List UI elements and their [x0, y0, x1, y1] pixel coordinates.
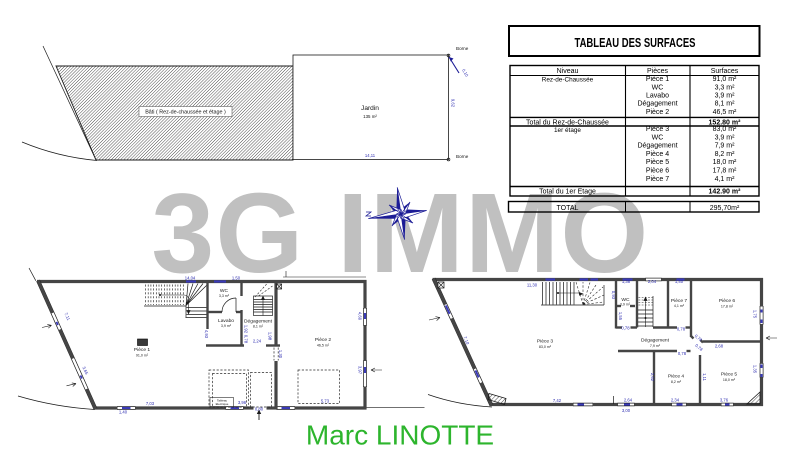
- svg-text:0,78: 0,78: [678, 351, 687, 356]
- svg-text:Marc LINOTTE: Marc LINOTTE: [306, 420, 494, 450]
- svg-text:Jardin: Jardin: [361, 105, 379, 112]
- svg-text:14,11: 14,11: [365, 153, 376, 158]
- svg-text:0,78: 0,78: [694, 343, 704, 353]
- svg-text:2,64: 2,64: [624, 398, 633, 403]
- svg-text:0,93: 0,93: [611, 291, 616, 300]
- svg-text:Total du Rez-de-Chaussée: Total du Rez-de-Chaussée: [526, 119, 609, 126]
- svg-text:1,92: 1,92: [244, 325, 249, 334]
- svg-text:0,78: 0,78: [621, 326, 630, 331]
- svg-text:Pièce 2: Pièce 2: [646, 109, 669, 116]
- svg-text:1,38: 1,38: [622, 279, 631, 284]
- svg-text:3,9 m²: 3,9 m²: [715, 134, 736, 141]
- svg-text:46,5 m²: 46,5 m²: [317, 344, 330, 348]
- svg-text:8,2 m²: 8,2 m²: [671, 380, 682, 384]
- svg-text:3,3 m²: 3,3 m²: [219, 294, 230, 298]
- svg-text:9,62: 9,62: [451, 99, 456, 108]
- svg-text:1,55: 1,55: [618, 312, 623, 321]
- svg-text:0,80: 0,80: [255, 406, 264, 411]
- svg-text:4,1 m²: 4,1 m²: [715, 176, 736, 183]
- svg-text:1,40: 1,40: [119, 410, 128, 415]
- svg-text:3,97: 3,97: [358, 366, 363, 375]
- svg-text:WC: WC: [652, 85, 664, 92]
- svg-text:Rez-de-Chaussée: Rez-de-Chaussée: [542, 77, 594, 84]
- svg-text:7,42: 7,42: [553, 398, 562, 403]
- svg-text:2,24: 2,24: [253, 338, 262, 343]
- svg-text:Pièce 3: Pièce 3: [537, 339, 554, 345]
- svg-text:TABLEAU DES SURFACES: TABLEAU DES SURFACES: [575, 35, 696, 50]
- svg-text:2,68: 2,68: [715, 344, 724, 349]
- svg-text:Lavabo: Lavabo: [646, 93, 669, 100]
- svg-text:3,96: 3,96: [238, 400, 247, 405]
- svg-text:3,9 m²: 3,9 m²: [620, 302, 631, 306]
- svg-text:14,04: 14,04: [185, 276, 196, 281]
- svg-text:83,0 m²: 83,0 m²: [539, 345, 552, 349]
- svg-text:3,76: 3,76: [720, 398, 729, 403]
- svg-text:91,0 m²: 91,0 m²: [136, 354, 149, 358]
- svg-text:46,5 m²: 46,5 m²: [713, 109, 737, 116]
- svg-text:4,93: 4,93: [204, 330, 209, 339]
- svg-text:TOTAL: TOTAL: [557, 205, 579, 212]
- svg-text:2,62: 2,62: [650, 373, 655, 382]
- svg-text:7,03: 7,03: [146, 401, 155, 406]
- svg-text:Total du 1er Etage: Total du 1er Etage: [539, 188, 596, 195]
- svg-text:8,2 m²: 8,2 m²: [715, 151, 736, 158]
- svg-text:1,30: 1,30: [278, 350, 283, 359]
- svg-text:2,04: 2,04: [648, 279, 657, 284]
- svg-text:Pièce 1: Pièce 1: [646, 76, 669, 83]
- svg-text:7,9 m²: 7,9 m²: [650, 344, 661, 348]
- svg-text:3,65: 3,65: [81, 366, 89, 376]
- svg-text:Surfaces: Surfaces: [711, 68, 739, 75]
- svg-text:11,30: 11,30: [527, 283, 538, 288]
- svg-text:Bâti ( Rez-de-chaussée et étag: Bâti ( Rez-de-chaussée et étage ): [145, 110, 226, 116]
- svg-text:Pièce 1: Pièce 1: [134, 347, 151, 353]
- svg-text:17,8 m²: 17,8 m²: [721, 305, 734, 309]
- svg-text:Pièces: Pièces: [647, 68, 669, 75]
- svg-text:Pièce 5: Pièce 5: [646, 159, 669, 166]
- svg-text:Borne: Borne: [456, 46, 469, 51]
- svg-text:Dégagement: Dégagement: [637, 100, 677, 107]
- svg-text:Pièce 6: Pièce 6: [646, 168, 669, 175]
- svg-text:0,78: 0,78: [677, 327, 686, 332]
- svg-text:295,70m²: 295,70m²: [710, 205, 740, 212]
- svg-text:3,9 m²: 3,9 m²: [715, 93, 736, 100]
- svg-text:Borne: Borne: [456, 154, 469, 159]
- svg-text:8,1 m²: 8,1 m²: [715, 100, 736, 107]
- svg-text:Dégagement: Dégagement: [641, 338, 670, 344]
- svg-text:Dégagement: Dégagement: [637, 143, 677, 150]
- svg-text:83,0 m²: 83,0 m²: [713, 126, 737, 133]
- svg-text:1er étage: 1er étage: [554, 127, 581, 134]
- svg-text:5,73: 5,73: [321, 398, 330, 403]
- svg-text:7,11: 7,11: [63, 312, 71, 322]
- svg-text:Pièce 3: Pièce 3: [646, 126, 669, 133]
- svg-text:1,50: 1,50: [232, 276, 241, 281]
- svg-text:3,9 m²: 3,9 m²: [221, 324, 232, 328]
- svg-text:Pièce 4: Pièce 4: [668, 374, 685, 380]
- svg-text:3,00: 3,00: [622, 408, 631, 413]
- svg-text:18,0 m²: 18,0 m²: [713, 159, 737, 166]
- svg-text:Pièce 7: Pièce 7: [646, 176, 669, 183]
- svg-text:1,35: 1,35: [753, 365, 758, 374]
- svg-text:142.90 m²: 142.90 m²: [709, 188, 742, 195]
- svg-text:WC: WC: [652, 134, 664, 141]
- svg-text:91,0 m²: 91,0 m²: [713, 76, 737, 83]
- svg-text:Pièce 5: Pièce 5: [721, 372, 738, 378]
- svg-text:0,78: 0,78: [244, 335, 249, 344]
- svg-text:Niveau: Niveau: [557, 68, 579, 75]
- svg-text:1,11: 1,11: [702, 373, 707, 382]
- svg-text:3,3 m²: 3,3 m²: [715, 85, 736, 92]
- svg-text:8,1 m²: 8,1 m²: [253, 325, 264, 329]
- svg-text:17,8 m²: 17,8 m²: [713, 168, 737, 175]
- svg-text:4,1 m²: 4,1 m²: [674, 304, 685, 308]
- svg-text:Pièce 2: Pièce 2: [315, 337, 332, 343]
- svg-text:18,0 m²: 18,0 m²: [723, 378, 736, 382]
- svg-text:0,10: 0,10: [461, 68, 470, 78]
- svg-text:2,34: 2,34: [671, 398, 680, 403]
- svg-text:Electrique: Electrique: [216, 402, 229, 406]
- svg-text:4,60: 4,60: [358, 312, 363, 321]
- svg-text:7,9 m²: 7,9 m²: [715, 143, 736, 150]
- svg-text:Pièce 4: Pièce 4: [646, 151, 669, 158]
- svg-text:Pièce 6: Pièce 6: [719, 298, 736, 304]
- svg-text:1,75: 1,75: [753, 310, 758, 319]
- svg-text:1,40: 1,40: [675, 279, 684, 284]
- svg-text:1,98: 1,98: [268, 332, 273, 341]
- svg-text:135 m²: 135 m²: [363, 114, 377, 119]
